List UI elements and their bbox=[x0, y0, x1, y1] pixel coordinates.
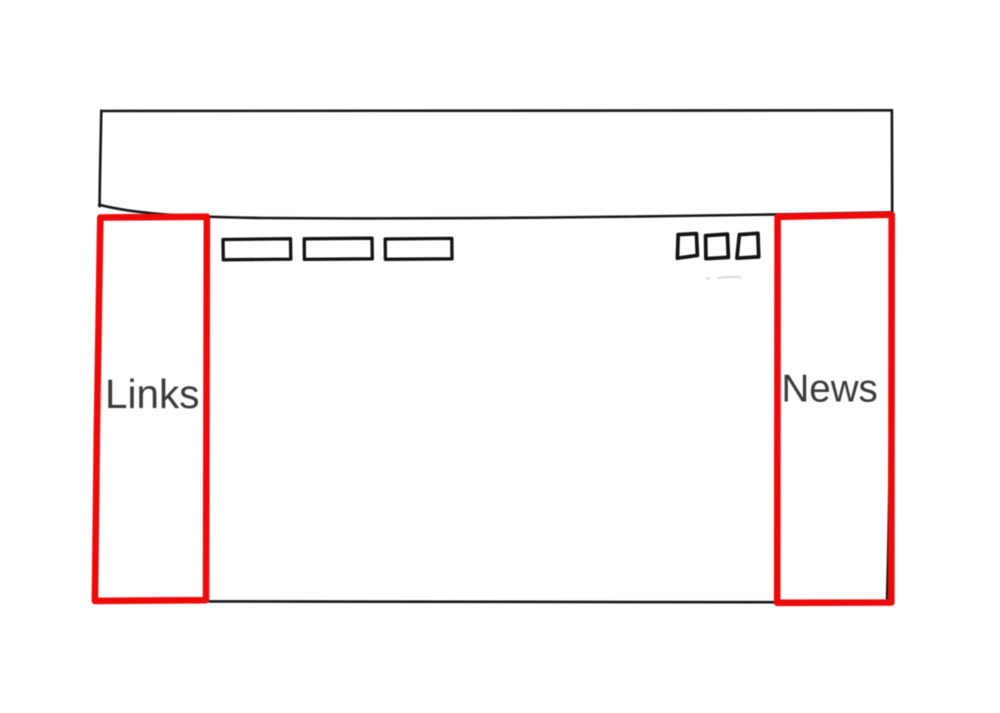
svg-text:Links: Links bbox=[105, 371, 200, 417]
svg-text:News: News bbox=[782, 368, 878, 411]
